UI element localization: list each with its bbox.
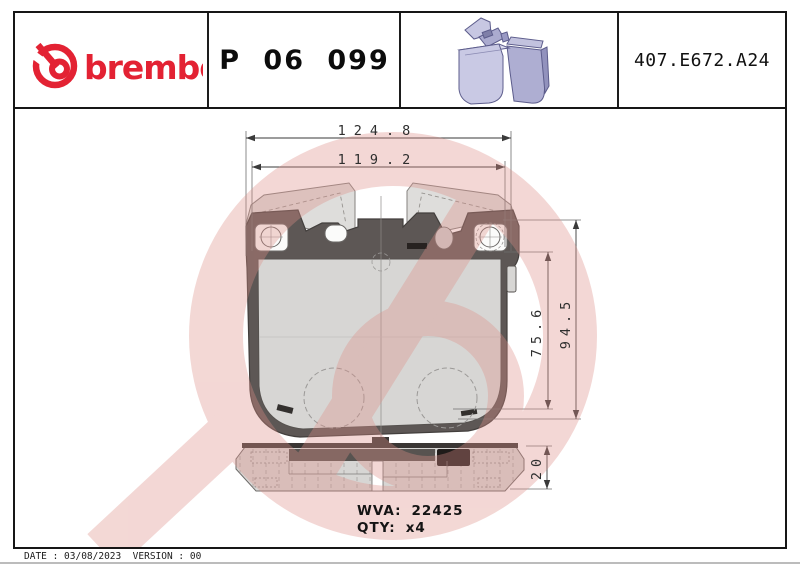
brembo-wordmark: brembo [84, 48, 203, 87]
wva-row: WVA:22425 [357, 503, 464, 520]
brake-pads-3d-render-icon [443, 10, 588, 112]
dim-width-outer: 124.8 [330, 123, 426, 139]
dim-height-inner: 75.6 [529, 296, 545, 366]
part-number: P 06 099 [209, 13, 400, 107]
wva-label: WVA: [357, 503, 402, 519]
datasheet-page: brembo P 06 099 407.E672.A24 [0, 0, 800, 566]
dim-thickness: 20 [529, 432, 545, 502]
pad-spec-block: WVA:22425 QTY:x4 [357, 503, 464, 537]
dim-height-outer: 94.5 [558, 288, 574, 358]
qty-label: QTY: [357, 520, 396, 536]
qty-value: x4 [406, 520, 426, 536]
wva-value: 22425 [412, 503, 464, 519]
brembo-logo-icon [31, 45, 74, 85]
qty-row: QTY:x4 [357, 520, 464, 537]
technical-drawing [13, 109, 787, 547]
catalog-number: 407.E672.A24 [619, 13, 785, 107]
footer-date-version: DATE : 03/08/2023 VERSION : 00 [24, 551, 201, 562]
dim-width-inner: 119.2 [330, 152, 426, 168]
brembo-logo: brembo [28, 38, 203, 94]
footer-rule [0, 562, 800, 564]
